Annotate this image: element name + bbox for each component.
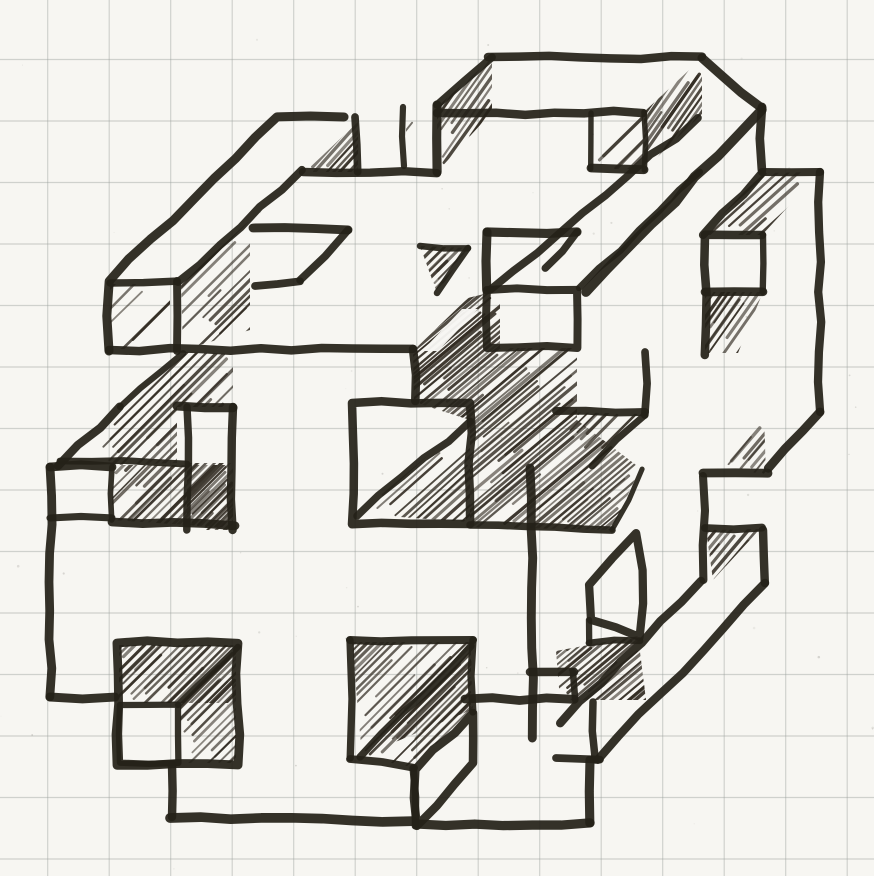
graph-paper-page <box>0 0 874 876</box>
sketch-svg <box>0 0 874 876</box>
